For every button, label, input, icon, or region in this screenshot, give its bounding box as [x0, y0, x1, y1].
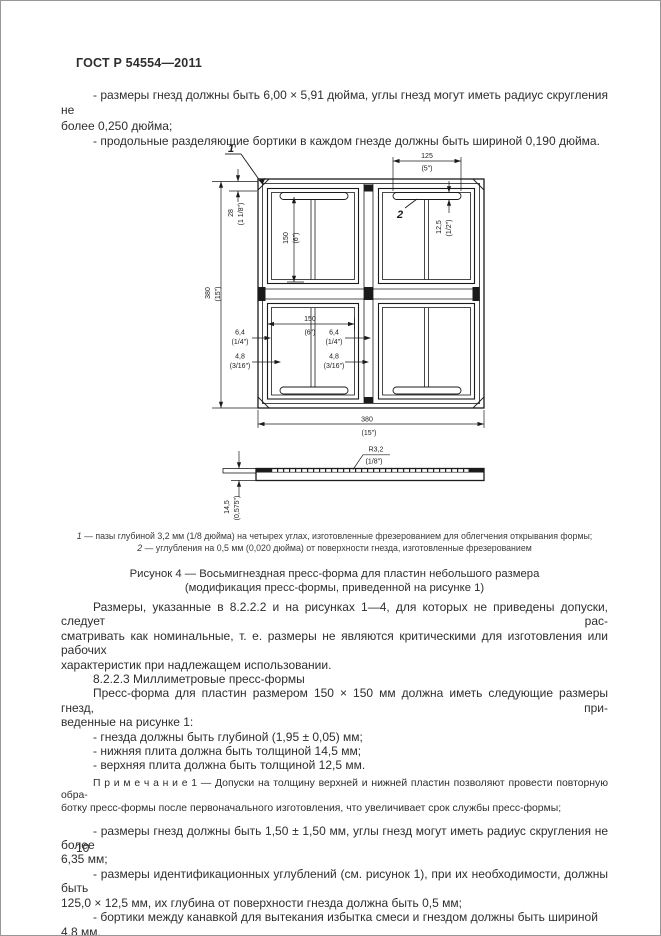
- mold-quadrant-top-left: [268, 189, 359, 284]
- dim-text: R3,2: [369, 447, 384, 454]
- body-line: - верхняя плита должна быть толщиной 12,…: [61, 758, 608, 772]
- dim-text: 6,4: [235, 330, 245, 337]
- callout-1: 1: [225, 143, 266, 185]
- document-page: ГОСТ Р 54554—2011 - размеры гнезд должны…: [0, 0, 661, 936]
- body-line: Пресс-форма для пластин размером 150 × 1…: [61, 686, 608, 715]
- intro-line: более 0,250 дюйма;: [61, 119, 608, 134]
- dimension-380-left: 380 (15"): [205, 182, 258, 409]
- body-line: сматривать как номинальные, т. е. размер…: [61, 629, 608, 658]
- dim-text: (1/8"): [366, 459, 383, 466]
- body-line: - размеры идентификационных углублений (…: [61, 867, 608, 896]
- dim-text: (1/4"): [326, 339, 343, 346]
- body-line: Размеры, указанные в 8.2.2.2 и на рисунк…: [61, 600, 608, 629]
- body-text: Размеры, указанные в 8.2.2.2 и на рисунк…: [61, 600, 608, 936]
- dimension-125: 125 (5"): [393, 153, 461, 191]
- dimension-r3-2: R3,2 (1/8"): [353, 447, 390, 470]
- dim-text: (5"): [421, 166, 432, 173]
- intro-line: - продольные разделяющие бортики в каждо…: [61, 134, 608, 149]
- dim-text: (1 1/8"): [238, 203, 245, 226]
- dim-text: 150: [283, 232, 290, 244]
- dimension-14-5: 14,5 (0,575"): [224, 451, 241, 520]
- dim-text: (0,575"): [234, 496, 241, 521]
- dim-text: (6"): [304, 330, 315, 337]
- footnote-text: — углубления на 0,5 мм (0,020 дюйма) от …: [145, 543, 532, 553]
- body-line: - размеры гнезд должны быть 1,50 ± 1,50 …: [61, 824, 608, 853]
- dimension-12-5: 12,5 (1/2"): [436, 181, 453, 236]
- callout-label: 2: [396, 209, 403, 221]
- dim-text: (1/4"): [232, 339, 249, 346]
- dimension-380-bottom: 380 (15"): [258, 410, 484, 437]
- dim-text: (3/16"): [324, 363, 345, 370]
- dim-text: 125: [421, 153, 433, 160]
- footnote-number: 1: [77, 531, 82, 541]
- dim-text: 4,8: [329, 354, 339, 361]
- doc-header: ГОСТ Р 54554—2011: [76, 56, 202, 70]
- page-number: 10: [76, 841, 89, 855]
- mold-quadrant-bottom-left: [268, 304, 359, 400]
- body-line: характеристик при надлежащем использован…: [61, 658, 608, 672]
- dimension-4-8-left: 4,8 (3/16"): [230, 354, 281, 371]
- dim-text: 28: [228, 209, 235, 217]
- dim-text: 14,5: [224, 500, 231, 514]
- caption-line: Рисунок 4 — Восьмигнездная пресс-форма д…: [61, 567, 608, 581]
- note-line: ботку пресс-формы после первоначального …: [61, 803, 608, 816]
- body-line: 6,35 мм;: [61, 852, 608, 866]
- intro-line: - размеры гнезд должны быть 6,00 × 5,91 …: [61, 88, 608, 119]
- body-line: - гнезда должны быть глубиной (1,95 ± 0,…: [61, 730, 608, 744]
- figure-caption: Рисунок 4 — Восьмигнездная пресс-форма д…: [61, 567, 608, 595]
- body-line: 125,0 × 12,5 мм, их глубина от поверхнос…: [61, 896, 608, 910]
- dim-text: 380: [361, 417, 373, 424]
- mold-quadrant-top-right: [379, 189, 475, 284]
- dimension-6-4-right: 6,4 (1/4"): [326, 330, 371, 347]
- dim-text: (15"): [215, 287, 222, 302]
- section-view: [223, 469, 484, 481]
- intro-paragraphs: - размеры гнезд должны быть 6,00 × 5,91 …: [61, 88, 608, 149]
- dim-text: 150: [304, 316, 316, 323]
- body-line: - нижняя плита должна быть толщиной 14,5…: [61, 744, 608, 758]
- body-line: веденные на рисунке 1:: [61, 715, 608, 729]
- note-line: П р и м е ч а н и е 1 — Допуски на толщи…: [61, 778, 608, 803]
- dimension-150-horizontal: 150 (6"): [268, 316, 355, 337]
- footnote: 2 — углубления на 0,5 мм (0,020 дюйма) о…: [61, 543, 608, 555]
- mold-quadrant-bottom-right: [379, 304, 475, 400]
- dim-text: (6"): [293, 232, 300, 243]
- body-line: 8.2.2.3 Миллиметровые пресс-формы: [61, 672, 608, 686]
- body-line: - бортики между канавкой для вытекания и…: [61, 910, 608, 936]
- dim-text: (1/2"): [446, 220, 453, 237]
- dim-text: 6,4: [329, 330, 339, 337]
- dim-text: 380: [205, 287, 212, 299]
- dim-text: 12,5: [436, 220, 443, 234]
- dim-text: 4,8: [235, 354, 245, 361]
- footnote-number: 2: [137, 543, 142, 553]
- footnote: 1 — пазы глубиной 3,2 мм (1/8 дюйма) на …: [61, 531, 608, 543]
- dimension-28: 28 (1 1/8"): [212, 169, 258, 225]
- dimension-6-4-left: 6,4 (1/4"): [232, 330, 271, 347]
- footnote-text: — пазы глубиной 3,2 мм (1/8 дюйма) на че…: [84, 531, 592, 541]
- callout-2: 2: [396, 199, 417, 221]
- dimension-4-8-right: 4,8 (3/16"): [324, 354, 369, 371]
- mold-channels: [259, 184, 480, 403]
- dimension-150-vertical: 150 (6"): [283, 197, 304, 282]
- mold-frame: [258, 179, 484, 408]
- dim-text: (15"): [362, 430, 377, 437]
- figure-footnotes: 1 — пазы глубиной 3,2 мм (1/8 дюйма) на …: [61, 531, 608, 554]
- note-paragraph: П р и м е ч а н и е 1 — Допуски на толщи…: [61, 778, 608, 816]
- dim-text: (3/16"): [230, 363, 251, 370]
- caption-line: (модификация пресс-формы, приведенной на…: [61, 581, 608, 595]
